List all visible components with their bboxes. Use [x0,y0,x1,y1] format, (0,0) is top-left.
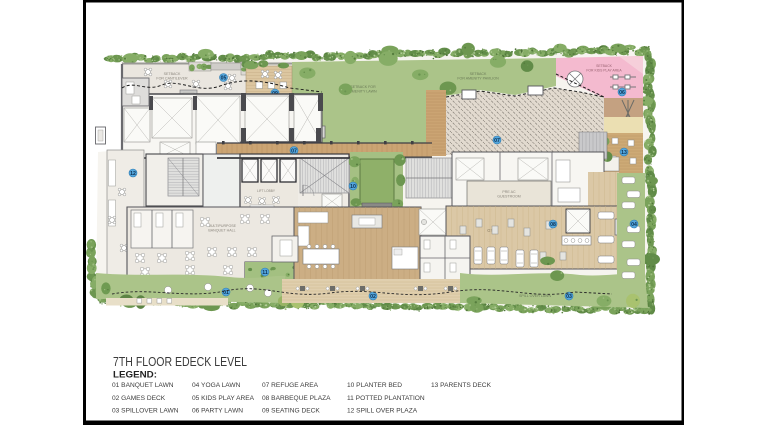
svg-text:BANQUET HALL: BANQUET HALL [208,229,235,233]
svg-text:FOR AMENITY PAVILION: FOR AMENITY PAVILION [457,77,499,81]
svg-text:08 BARBEQUE PLAZA: 08 BARBEQUE PLAZA [262,395,331,402]
svg-text:10: 10 [350,184,356,190]
svg-text:02: 02 [370,294,376,300]
svg-text:13: 13 [621,150,627,156]
svg-text:05 KIDS PLAY AREA: 05 KIDS PLAY AREA [192,395,255,402]
svg-text:03: 03 [566,294,572,300]
svg-text:08: 08 [550,222,556,228]
svg-text:SETBACK FOR: SETBACK FOR [350,85,376,89]
svg-text:AMENITY LAWN: AMENITY LAWN [349,90,377,94]
svg-text:SETBACK: SETBACK [164,72,181,76]
svg-text:7TH FLOOR EDECK LEVEL: 7TH FLOOR EDECK LEVEL [113,354,247,369]
svg-text:11: 11 [262,270,268,276]
svg-text:MULTIPURPOSE: MULTIPURPOSE [208,224,237,228]
svg-text:PRE AC: PRE AC [502,190,516,194]
svg-text:SPILL OVER LAWN: SPILL OVER LAWN [519,294,551,298]
svg-text:FOR CANTILEVER: FOR CANTILEVER [156,77,188,81]
svg-text:SETBACK: SETBACK [596,64,613,68]
svg-text:LIFT LOBBY: LIFT LOBBY [257,189,276,193]
svg-text:04: 04 [631,222,637,228]
svg-text:05: 05 [221,75,227,81]
svg-text:FOR KIDS PLAY AREA: FOR KIDS PLAY AREA [586,69,622,73]
svg-text:01 BANQUET LAWN: 01 BANQUET LAWN [112,382,174,389]
svg-text:13 PARENTS DECK: 13 PARENTS DECK [431,382,492,389]
svg-text:SETBACK: SETBACK [470,72,487,76]
svg-text:03 SPILLOVER LAWN: 03 SPILLOVER LAWN [112,408,179,415]
svg-text:09 SEATING DECK: 09 SEATING DECK [262,408,320,415]
svg-text:LEGEND:: LEGEND: [113,370,157,381]
svg-text:02 GAMES DECK: 02 GAMES DECK [112,395,166,402]
svg-text:10 PLANTER BED: 10 PLANTER BED [347,382,402,389]
svg-text:07 REFUGE AREA: 07 REFUGE AREA [262,382,319,389]
svg-text:GUESTROOM: GUESTROOM [497,195,521,199]
svg-text:12 SPILL OVER PLAZA: 12 SPILL OVER PLAZA [347,408,418,415]
svg-text:04 YOGA LAWN: 04 YOGA LAWN [192,382,241,389]
svg-text:12: 12 [130,171,136,177]
svg-text:06: 06 [619,90,625,96]
svg-text:07: 07 [494,138,500,144]
svg-text:06 PARTY LAWN: 06 PARTY LAWN [192,408,243,415]
svg-text:11 POTTED PLANTATION: 11 POTTED PLANTATION [347,395,425,402]
